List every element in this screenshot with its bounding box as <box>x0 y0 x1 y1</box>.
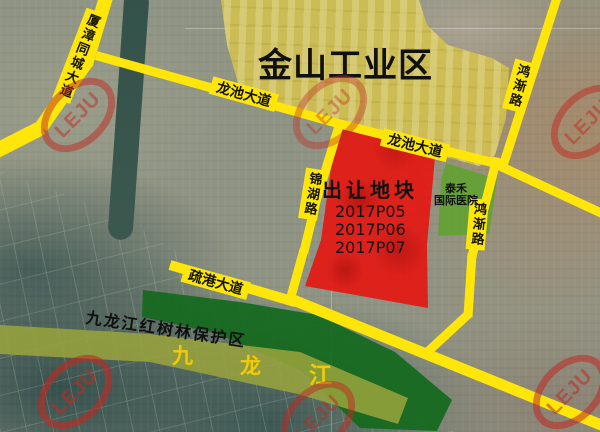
leju-watermark-text: LEJU <box>47 364 102 419</box>
parcel-number: 2017P07 <box>335 239 406 257</box>
parcel-number-list: 2017P05 2017P06 2017P07 <box>335 203 406 257</box>
river-name-char: 龙 <box>240 350 261 380</box>
parcel-number: 2017P06 <box>335 221 406 239</box>
leju-watermark-text: LEJU <box>290 390 345 432</box>
land-parcel-map: 厦漳同城大道 龙池大道 龙池大道 鸿渐路 鸿渐路 锦湖路 疏港大道 金山工业区 … <box>0 0 600 432</box>
leju-watermark-text: LEJU <box>542 364 597 419</box>
leju-watermark-text: LEJU <box>560 94 600 149</box>
hospital-label-line1: 泰禾 <box>425 184 487 196</box>
leju-watermark-text: LEJU <box>302 84 357 139</box>
hospital-label-line2: 国际医院 <box>425 196 487 208</box>
transfer-parcel-label: 出让地块 <box>322 174 418 203</box>
hospital-label: 泰禾 国际医院 <box>425 184 487 207</box>
leju-watermark-text: LEJU <box>50 87 105 142</box>
parcel-number: 2017P05 <box>335 203 406 221</box>
river-name-char: 九 <box>172 340 193 370</box>
